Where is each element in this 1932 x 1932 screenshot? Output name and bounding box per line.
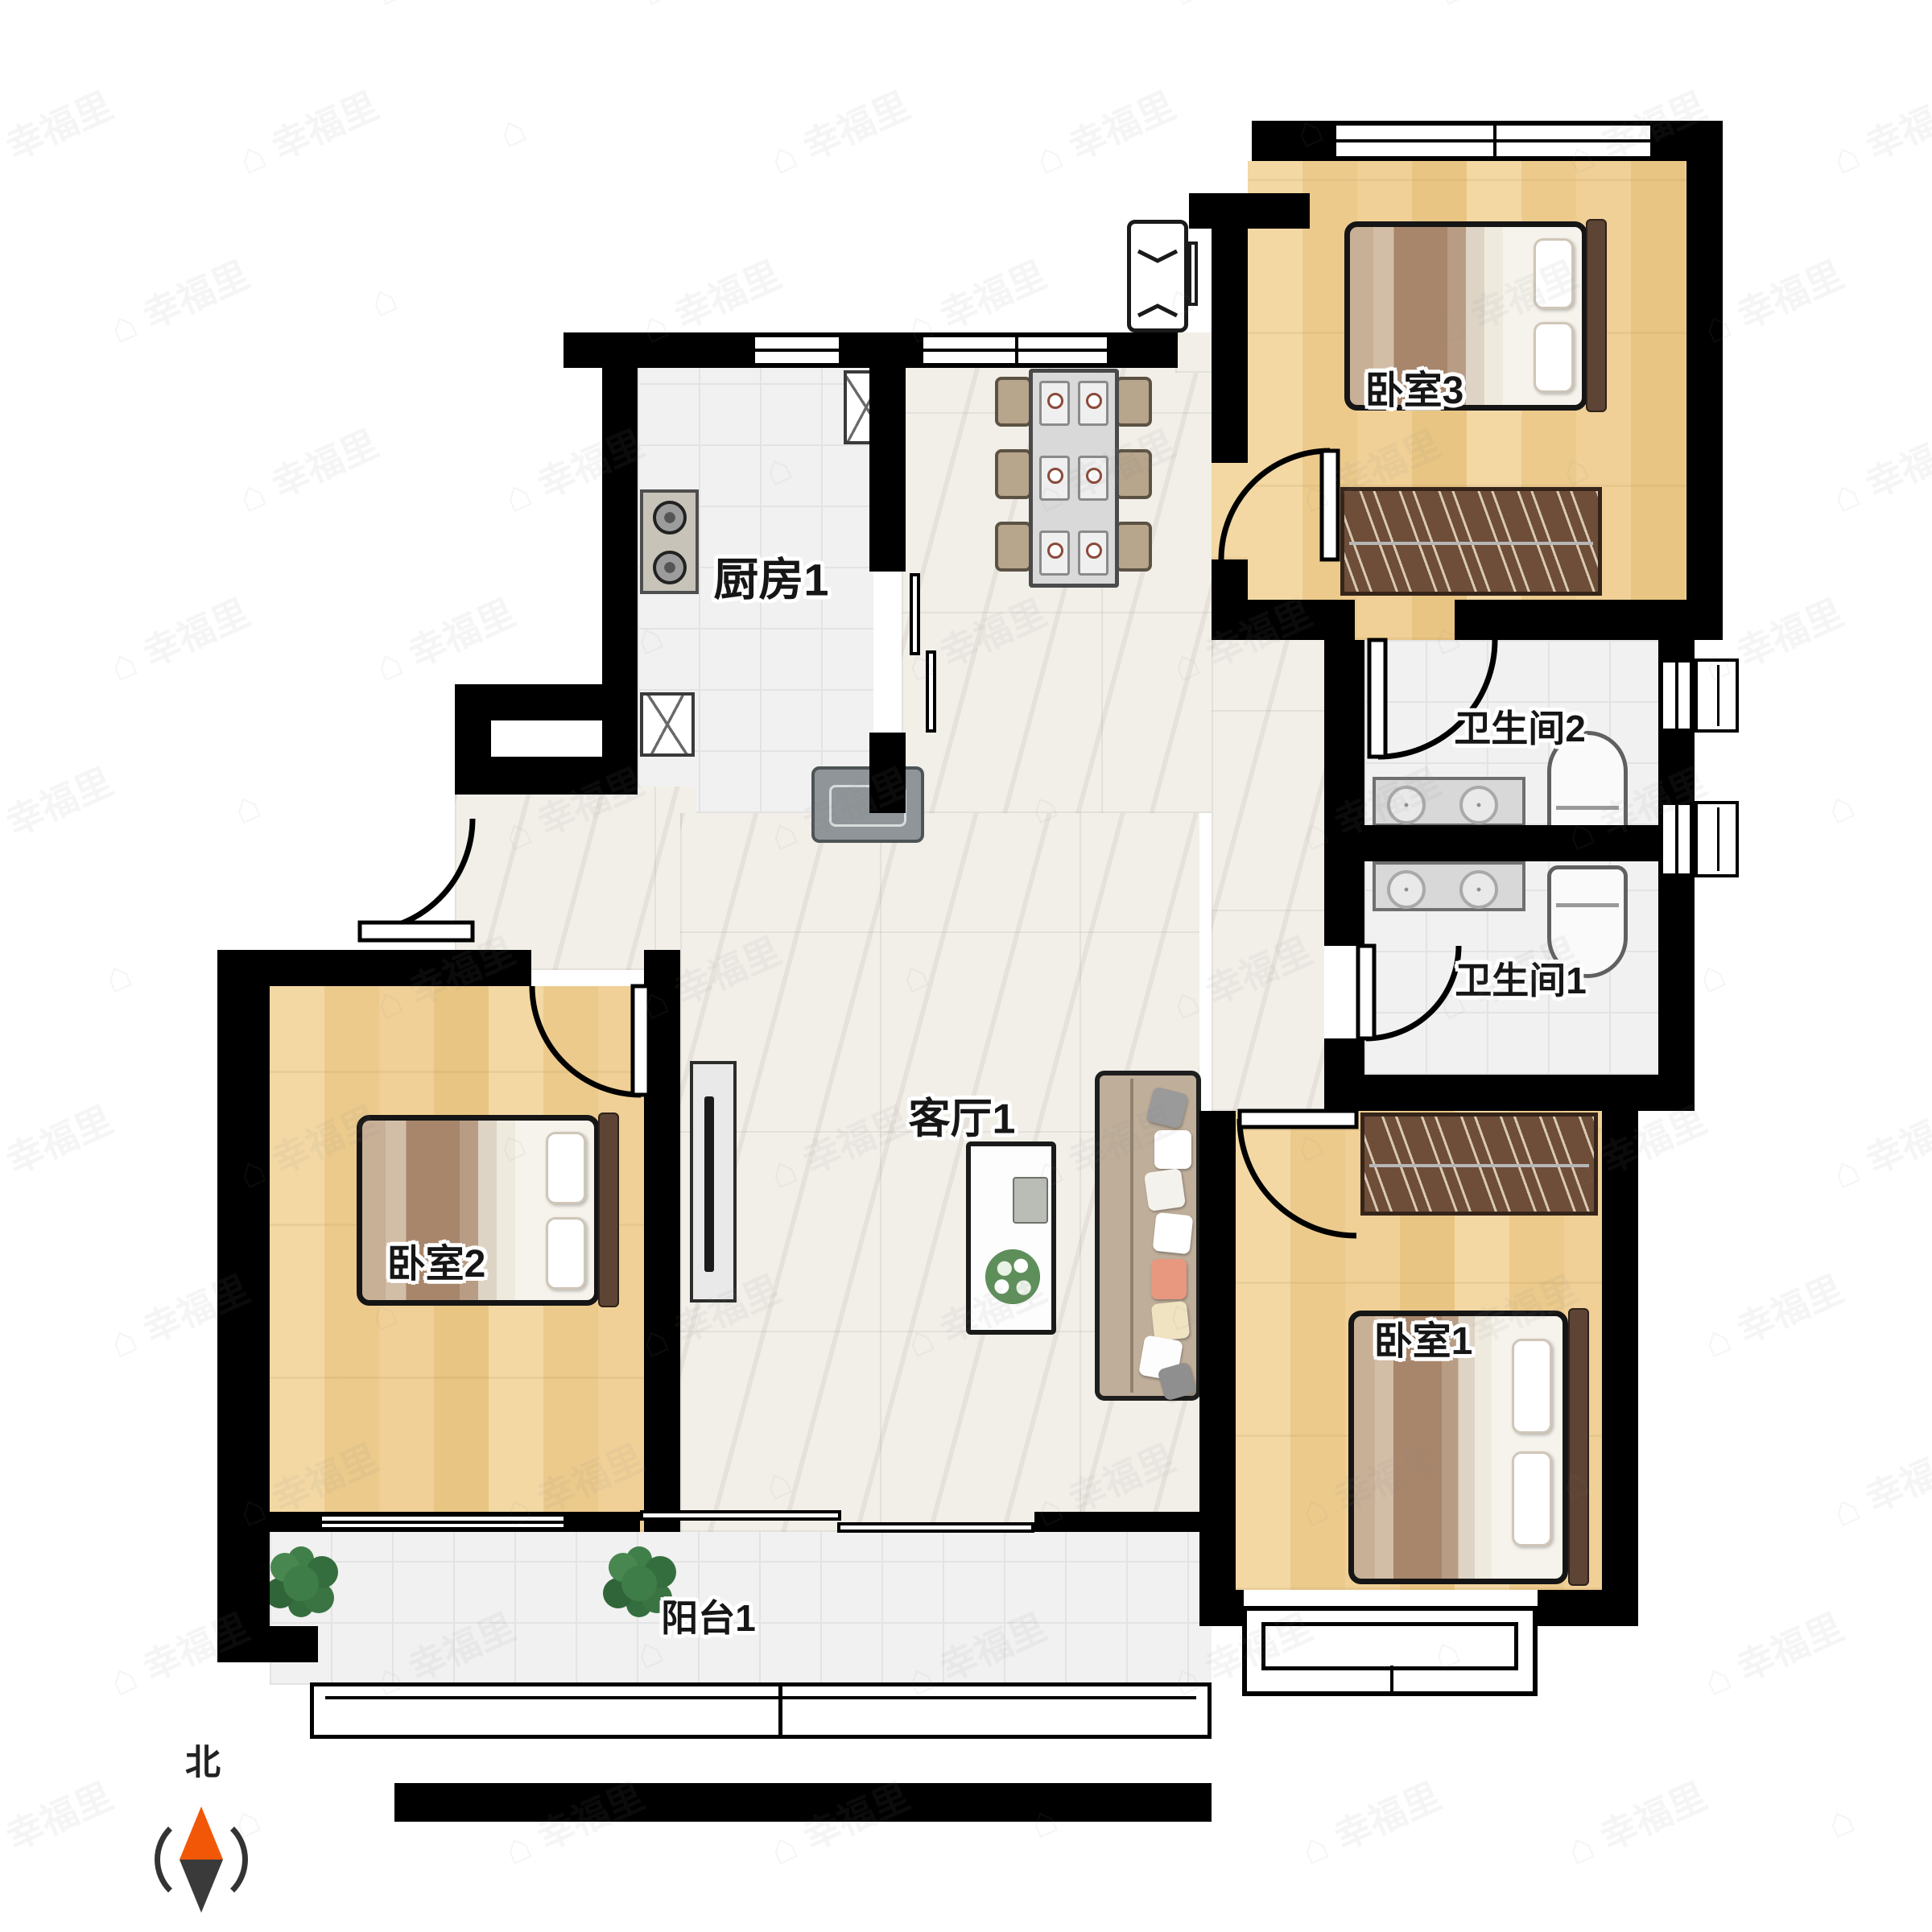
room-label-bedroom3: 卧室3	[1365, 358, 1464, 415]
room-label-living: 客厅1	[909, 1085, 1016, 1146]
room-label-kitchen: 厨房1	[713, 544, 828, 609]
compass-north-label: 北	[185, 1733, 221, 1785]
room-label-balcony: 阳台1	[661, 1589, 756, 1642]
door-swing-overlay	[0, 0, 1932, 1932]
floor-plan: 厨房1 卧室3 卫生间2 卫生间1 客厅1 卧室2 卧室1 阳台1 北 ⌂幸福里…	[0, 0, 1932, 1932]
room-label-bath1: 卫生间1	[1455, 952, 1587, 1005]
room-label-bedroom1: 卧室1	[1374, 1309, 1473, 1365]
room-label-bedroom2: 卧室2	[387, 1232, 486, 1288]
room-label-bath2: 卫生间2	[1454, 700, 1586, 753]
